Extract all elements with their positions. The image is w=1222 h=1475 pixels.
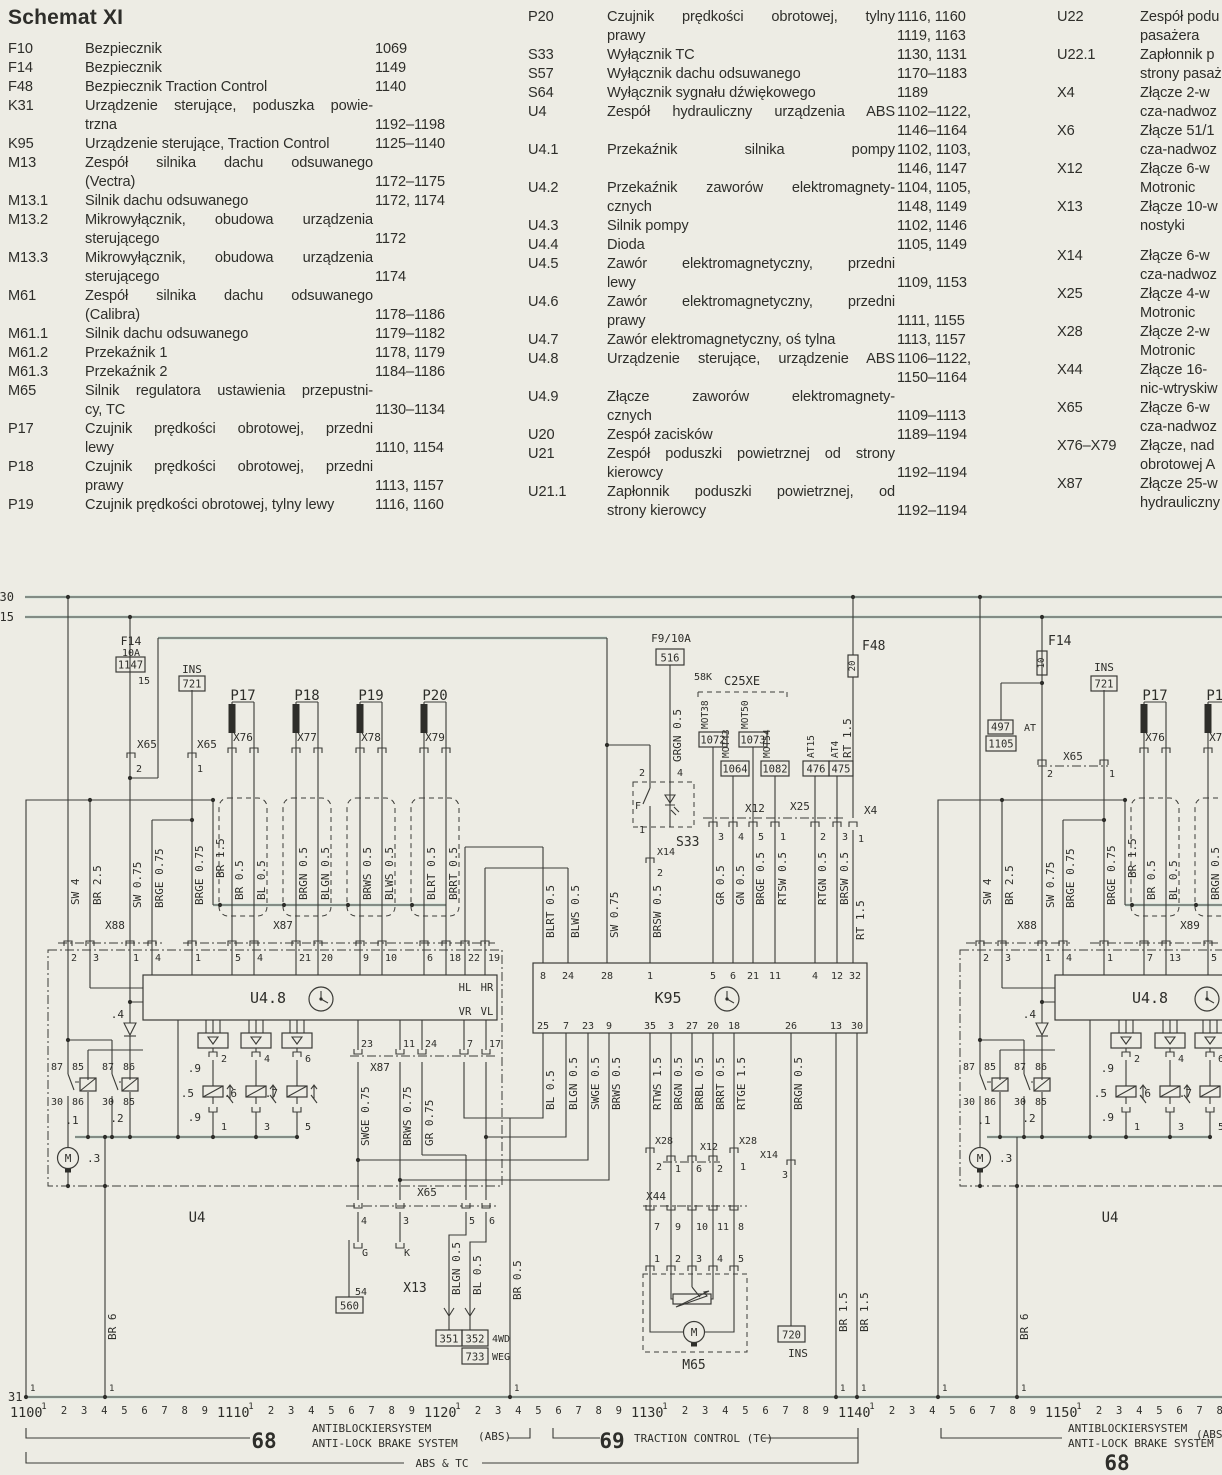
- ruler-superscript: 1: [455, 1402, 460, 1412]
- junction-dot: [176, 1135, 180, 1139]
- ruler-minor: 7: [1196, 1405, 1202, 1417]
- diagram-label: SW 0.75: [131, 862, 144, 908]
- junction-dot: [398, 1178, 402, 1182]
- motor-m-letter: M: [977, 1152, 984, 1165]
- ruler-minor: 8: [1010, 1405, 1016, 1417]
- diagram-label: 87: [102, 1062, 114, 1073]
- diagram-label: 1: [221, 1122, 227, 1133]
- diagram-label: 5: [758, 832, 764, 843]
- diagram-label: 24: [562, 971, 574, 982]
- diagram-label: BLWS 0.5: [569, 885, 582, 938]
- diagram-label: K: [404, 1248, 410, 1259]
- junction-dot: [128, 615, 132, 619]
- diagram-label: .2: [1022, 1112, 1035, 1125]
- wire-segment: [246, 1086, 266, 1097]
- ruler-minor: 5: [1156, 1405, 1162, 1417]
- junction-dot: [1040, 1135, 1044, 1139]
- diagram-label: 1: [780, 832, 786, 843]
- diagram-label: 1: [654, 1254, 660, 1265]
- diagram-label: 1: [675, 1164, 681, 1175]
- diagram-label: 1: [30, 1384, 35, 1394]
- diagram-label: 30: [963, 1097, 975, 1108]
- junction-dot: [66, 595, 70, 599]
- diagram-label: S33: [676, 835, 699, 850]
- diagram-label: 1: [639, 825, 645, 836]
- diagram-label: 4: [677, 768, 683, 779]
- valve-box: [1155, 1033, 1185, 1048]
- junction-dot: [834, 1395, 838, 1399]
- diagram-label: 85: [123, 1097, 135, 1108]
- diagram-label: SWGE 0.75: [359, 1086, 372, 1146]
- diagram-label: X14: [657, 847, 675, 858]
- motor-m-letter: M: [691, 1326, 698, 1339]
- diagram-label: ANTI-LOCK BRAKE SYSTEM: [312, 1437, 458, 1450]
- diagram-label: 15: [0, 610, 14, 624]
- wheel-speed-sensor: [357, 704, 364, 733]
- diagram-label: 30: [0, 590, 14, 604]
- diagram-label: 4WD: [492, 1334, 510, 1345]
- diagram-label: RTSW 0.5: [776, 852, 789, 905]
- diagram-label: ANTI-LOCK BRAKE SYSTEM: [1068, 1437, 1214, 1450]
- wire-segment: [311, 1085, 317, 1103]
- diagram-label: 3: [782, 1170, 788, 1181]
- diagram-label: BR 0.5: [1145, 860, 1158, 900]
- ruler-decade: 1110: [217, 1405, 250, 1421]
- junction-dot: [1208, 1135, 1212, 1139]
- junction-dot: [508, 1395, 512, 1399]
- diagram-label: 1: [1021, 1384, 1026, 1394]
- ruler-minor: 2: [475, 1405, 481, 1417]
- motor-base: [65, 1169, 71, 1173]
- diagram-label: 7: [654, 1222, 660, 1233]
- diagram-label: AT: [1024, 723, 1036, 734]
- diagram-label: X89: [1180, 919, 1200, 932]
- diagram-label: GN 0.5: [734, 865, 747, 905]
- fuse-rating: 20: [848, 661, 858, 672]
- diagram-label: GR 0.75: [423, 1100, 436, 1146]
- diagram-label: BL 0.5: [1167, 860, 1180, 900]
- diagram-label: 1: [514, 1384, 519, 1394]
- diagram-label: X44: [646, 1190, 666, 1203]
- wire-segment: [727, 991, 734, 1003]
- diagram-label: 4: [717, 1254, 723, 1265]
- diagram-label: 10: [696, 1222, 708, 1233]
- diagram-label: G: [362, 1248, 368, 1259]
- c25xe-bracket: [698, 692, 787, 700]
- wire-segment: [112, 1074, 118, 1090]
- clock-center: [725, 997, 728, 1000]
- diagram-label: BLGN 0.5: [567, 1057, 580, 1110]
- motor-m-letter: M: [65, 1152, 72, 1165]
- diagram-label: 11: [769, 971, 781, 982]
- diagram-label: 11: [403, 1039, 415, 1050]
- reference-number: 1073: [740, 735, 765, 747]
- diagram-label: (ABS): [478, 1430, 511, 1443]
- diagram-label: 6: [730, 971, 736, 982]
- diagram-label: 2: [717, 1164, 723, 1175]
- ruler-minor: 2: [1096, 1405, 1102, 1417]
- ruler-minor: 8: [1217, 1405, 1222, 1417]
- ruler-minor: 9: [409, 1405, 415, 1417]
- clock-center: [319, 997, 322, 1000]
- reference-number: 1072: [700, 735, 725, 747]
- junction-dot: [86, 1135, 90, 1139]
- diagram-label: BR 6: [1018, 1314, 1031, 1341]
- tc-switch-s33-outline: [633, 782, 694, 827]
- motor-base: [977, 1169, 983, 1173]
- diagram-label: .1: [65, 1114, 78, 1127]
- valve-box: [198, 1033, 228, 1048]
- reference-number: 721: [183, 679, 202, 691]
- junction-dot: [211, 798, 215, 802]
- ruler-minor: 8: [596, 1405, 602, 1417]
- diagram-label: 30: [51, 1097, 63, 1108]
- junction-dot: [1022, 1135, 1026, 1139]
- diagram-label: 2: [1134, 1054, 1140, 1065]
- fuse-rating: 10: [1037, 658, 1047, 669]
- diagram-label: 9: [675, 1222, 681, 1233]
- wheel-speed-sensor: [421, 704, 428, 733]
- wires: [25, 597, 1222, 1397]
- ruler-minor: 5: [949, 1405, 955, 1417]
- diagram-label: .2: [110, 1112, 123, 1125]
- wiring-diagram: 301531F1410A15INSX652X651P17P18P19P20P17…: [0, 0, 1222, 1475]
- diagram-label: BRGN 0.5: [297, 847, 310, 900]
- ruler-decade: 1100: [10, 1405, 43, 1421]
- ruler-minor: 9: [1030, 1405, 1036, 1417]
- diagram-label: X65: [137, 738, 157, 751]
- valve-box: [1195, 1033, 1222, 1048]
- ruler-minor: 9: [616, 1405, 622, 1417]
- ruler-minor: 8: [803, 1405, 809, 1417]
- diagram-label: U4: [189, 1210, 206, 1226]
- junction-dot: [605, 743, 609, 747]
- junction-dot: [24, 1395, 28, 1399]
- ruler-minor: 2: [61, 1405, 67, 1417]
- diagram-label: 9: [363, 953, 369, 964]
- diagram-label: 6: [427, 953, 433, 964]
- diagram-label: 5: [1218, 1122, 1222, 1133]
- ruler-superscript: 1: [41, 1402, 46, 1412]
- ruler-decade: 1130: [631, 1405, 664, 1421]
- diagram-label: 2: [1047, 769, 1053, 780]
- diagram-label: 23: [582, 1021, 594, 1032]
- junction-dot: [1194, 903, 1198, 907]
- diagram-label: BRGN 0.5: [792, 1057, 805, 1110]
- ruler-minor: 2: [682, 1405, 688, 1417]
- diagram-label: 86: [72, 1097, 84, 1108]
- junction-dot: [103, 1395, 107, 1399]
- diagram-label: U4.8: [1132, 989, 1168, 1007]
- diagram-label: 85: [984, 1062, 996, 1073]
- s33-led-symbol: [665, 795, 679, 815]
- junction-dot: [211, 1135, 215, 1139]
- wire-segment: [1207, 991, 1214, 1003]
- diagram-label: 87: [963, 1062, 975, 1073]
- junction-dot: [103, 1184, 107, 1188]
- ruler-decade: 1150: [1045, 1405, 1078, 1421]
- diagram-label: SW 4: [69, 878, 82, 905]
- diagram-label: 2: [657, 868, 663, 879]
- junction-dot: [218, 903, 222, 907]
- diagram-label: 24: [425, 1039, 437, 1050]
- diagram-label: AT15: [806, 735, 817, 758]
- ruler-minor: 5: [121, 1405, 127, 1417]
- diagram-label: BRRT 0.5: [714, 1057, 727, 1110]
- diagram-label: F: [635, 801, 641, 812]
- junction-dot: [1088, 1135, 1092, 1139]
- diagram-label: 6: [305, 1054, 311, 1065]
- diagram-label: BRGE 0.75: [1105, 845, 1118, 905]
- valve-triangle-icon: [292, 1037, 302, 1044]
- junction-dot: [998, 1135, 1002, 1139]
- diagram-label: X14: [760, 1150, 778, 1161]
- wire-segment: [287, 1086, 307, 1097]
- valve-triangle-icon: [1205, 1037, 1215, 1044]
- diagram-label: X88: [1017, 919, 1037, 932]
- diagram-label: X28: [655, 1136, 673, 1147]
- wire-segment: [1160, 1086, 1180, 1097]
- diagram-label: X65: [417, 1186, 437, 1199]
- junction-dot: [1040, 615, 1044, 619]
- diagram-label: 5: [235, 953, 241, 964]
- diagram-label: BRWS 0.75: [401, 1086, 414, 1146]
- diagram-label: 69: [599, 1429, 624, 1453]
- diagram-label: BR 1.5: [1126, 838, 1139, 878]
- diagram-label: SW 4: [981, 878, 994, 905]
- diagram-label: 11: [717, 1222, 729, 1233]
- wire-segment: [354, 1243, 362, 1248]
- ruler-minor: 7: [161, 1405, 167, 1417]
- diagram-label: 18: [728, 1021, 740, 1032]
- abs-control-unit-u48-left-box: [143, 975, 497, 1020]
- diagram-label: 7: [1147, 953, 1153, 964]
- junction-dot: [88, 798, 92, 802]
- diagram-label: 1: [1045, 953, 1051, 964]
- diagram-label: U4.8: [250, 989, 286, 1007]
- ruler-minor: 3: [288, 1405, 294, 1417]
- diagram-label: .9: [1101, 1111, 1114, 1124]
- diagram-label: GRGN 0.5: [671, 709, 684, 762]
- diagram-label: 21: [299, 953, 311, 964]
- junction-dot: [128, 776, 132, 780]
- diagram-label: 1: [740, 1162, 746, 1173]
- diagram-label: X28: [739, 1136, 757, 1147]
- diagram-label: 26: [785, 1021, 797, 1032]
- diagram-label: BRGN 0.5: [1209, 847, 1222, 900]
- diagram-label: INS: [788, 1347, 808, 1360]
- diagram-label: RTWS 1.5: [651, 1057, 664, 1110]
- diagram-label: 28: [601, 971, 613, 982]
- diagram-label: BR 1.5: [858, 1292, 871, 1332]
- diagram-label: 4: [1178, 1054, 1184, 1065]
- ruler-minor: 9: [202, 1405, 208, 1417]
- diagram-label: HR: [481, 982, 494, 994]
- diagram-label: BR 1.5: [837, 1292, 850, 1332]
- ruler-minor: 7: [575, 1405, 581, 1417]
- hydraulic-unit-u4-left-outline: [48, 950, 502, 1186]
- diagram-label: 3: [93, 953, 99, 964]
- diagram-label: BR 0.5: [511, 1260, 524, 1300]
- diagram-label: SW 0.75: [608, 892, 621, 938]
- wire-segment: [1024, 1074, 1030, 1090]
- junction-dot: [295, 1135, 299, 1139]
- diagram-label: BR 0.5: [233, 860, 246, 900]
- diagram-label: BL 0.5: [471, 1255, 484, 1295]
- diagram-label: 3: [403, 1216, 409, 1227]
- diode-symbol: [124, 1023, 136, 1035]
- diagram-label: C25XE: [724, 674, 760, 688]
- diagram-label: 21: [747, 971, 759, 982]
- diagram-label: 86: [123, 1062, 135, 1073]
- diagram-label: 6: [1218, 1054, 1222, 1065]
- junction-dot: [66, 1184, 70, 1188]
- ruler-decade: 1120: [424, 1405, 457, 1421]
- diagram-label: 2: [136, 764, 142, 775]
- diagram-label: 3: [1005, 953, 1011, 964]
- junction-dot: [410, 903, 414, 907]
- valve-triangle-icon: [208, 1037, 218, 1044]
- diagram-label: 15: [138, 676, 150, 687]
- junction-dot: [1015, 1184, 1019, 1188]
- diagram-label: .9: [1101, 1062, 1114, 1075]
- diagram-label: 54: [355, 1287, 367, 1298]
- diagram-label: 1: [861, 1384, 866, 1394]
- diagram-label: 86: [984, 1097, 996, 1108]
- junction-dot: [1040, 681, 1044, 685]
- diagram-label: BRBL 0.5: [693, 1057, 706, 1110]
- ruler-minor: 8: [182, 1405, 188, 1417]
- ruler-minor: 9: [823, 1405, 829, 1417]
- valve-box: [1111, 1033, 1141, 1048]
- junction-dot: [128, 1135, 132, 1139]
- diagram-label: 3: [264, 1122, 270, 1133]
- ruler-minor: 3: [81, 1405, 87, 1417]
- diagram-label: ANTIBLOCKIERSYSTEM: [312, 1422, 432, 1435]
- diagram-label: 2: [221, 1054, 227, 1065]
- diagram-label: X13: [403, 1281, 426, 1296]
- diagram-label: X77: [297, 731, 317, 744]
- diagram-label: 7: [467, 1039, 473, 1050]
- valve-box: [282, 1033, 312, 1048]
- diagram-label: 2: [983, 953, 989, 964]
- diagram-label: 13: [830, 1021, 842, 1032]
- diagram-label: BL 0.5: [544, 1070, 557, 1110]
- reference-number: 351: [440, 1334, 459, 1346]
- diagram-label: .4: [1023, 1008, 1037, 1021]
- diagram-label: BRSW 0.5: [838, 852, 851, 905]
- junction-dot: [936, 1395, 940, 1399]
- diagram-label: BL 0.5: [255, 860, 268, 900]
- s33-switch-contact: [643, 788, 650, 804]
- diagram-label: BRRT 0.5: [447, 847, 460, 900]
- diagram-label: HL: [459, 982, 472, 994]
- diagram-label: 18: [449, 953, 461, 964]
- diagram-label: 19: [488, 953, 500, 964]
- diagram-label: AT4: [830, 741, 841, 758]
- diagram-label: 22: [468, 953, 480, 964]
- ruler-superscript: 1: [248, 1402, 253, 1412]
- diagram-label: 25: [537, 1021, 549, 1032]
- scanned-wiring-diagram-page: { "title": "Schemat XI", "colors": {"pap…: [0, 0, 1222, 1475]
- wire-segment: [980, 1074, 986, 1090]
- diagram-label: .9: [188, 1111, 201, 1124]
- ruler-minor: 4: [308, 1405, 314, 1417]
- diagram-label: X76: [1145, 731, 1165, 744]
- diagram-label: VR: [459, 1006, 472, 1018]
- diagram-label: F14: [1048, 634, 1072, 649]
- diagram-label: M65: [682, 1358, 705, 1373]
- diagram-label: X65: [197, 738, 217, 751]
- junction-dot: [978, 1184, 982, 1188]
- diagram-label: 4: [257, 953, 263, 964]
- diagram-label: 1: [109, 1384, 114, 1394]
- junction-dot: [282, 903, 286, 907]
- diagram-label: 4: [264, 1054, 270, 1065]
- diagram-label: 12: [831, 971, 843, 982]
- diagram-label: 1: [195, 953, 201, 964]
- diagram-label: MOT50: [740, 700, 751, 729]
- reference-number: 560: [340, 1301, 359, 1313]
- wheel-speed-sensor: [1205, 704, 1212, 733]
- clock-center: [1205, 997, 1208, 1000]
- diagram-label: 2: [639, 768, 645, 779]
- diagram-label: BR 2.5: [1003, 865, 1016, 905]
- junction-dot: [855, 1395, 859, 1399]
- diagram-label: BLGN 0.5: [319, 847, 332, 900]
- wire-segment: [396, 1243, 404, 1248]
- diagram-label: BRGE 0.75: [193, 845, 206, 905]
- diagram-label: 30: [1014, 1097, 1026, 1108]
- wire-segment: [203, 1086, 223, 1097]
- diagram-label: 1: [942, 1384, 947, 1394]
- ruler-minor: 7: [782, 1405, 788, 1417]
- diagram-label: RTGE 1.5: [735, 1057, 748, 1110]
- diagram-label: BR 6: [106, 1314, 119, 1341]
- throttle-motor-m65-outline: [643, 1274, 747, 1352]
- section-brackets: [26, 1428, 1062, 1463]
- diagram-label: X79: [425, 731, 445, 744]
- reference-number: 1082: [762, 764, 787, 776]
- wire-segment: [849, 822, 857, 827]
- junction-dot: [1168, 1135, 1172, 1139]
- diagram-label: 2: [675, 1254, 681, 1265]
- diagram-label: 4: [812, 971, 818, 982]
- diagram-label: BLGN 0.5: [450, 1242, 463, 1295]
- diagram-label: 5: [469, 1216, 475, 1227]
- reference-number: 497: [991, 722, 1010, 734]
- diagram-label: BLRT 0.5: [544, 885, 557, 938]
- diagram-label: .5: [1094, 1087, 1107, 1100]
- ruler-minor: 4: [929, 1405, 935, 1417]
- wire-segment: [321, 991, 328, 1003]
- reference-number: 720: [782, 1330, 801, 1342]
- diagram-label: U4: [1102, 1210, 1119, 1226]
- diagram-label: 5: [738, 1254, 744, 1265]
- ruler-minor: 7: [989, 1405, 995, 1417]
- junction-dot: [356, 1158, 360, 1162]
- junction-dot: [190, 818, 194, 822]
- ruler-minor: 4: [515, 1405, 521, 1417]
- diagram-label: BRGN 0.5: [672, 1057, 685, 1110]
- diagram-label: 3: [1178, 1122, 1184, 1133]
- ruler-minor: 3: [1116, 1405, 1122, 1417]
- diagram-label: BR 1.5: [214, 838, 227, 878]
- reference-number: 352: [466, 1334, 485, 1346]
- diagram-label: X25: [790, 800, 810, 813]
- diagram-label: 27: [686, 1021, 698, 1032]
- diode-symbol: [1036, 1023, 1048, 1035]
